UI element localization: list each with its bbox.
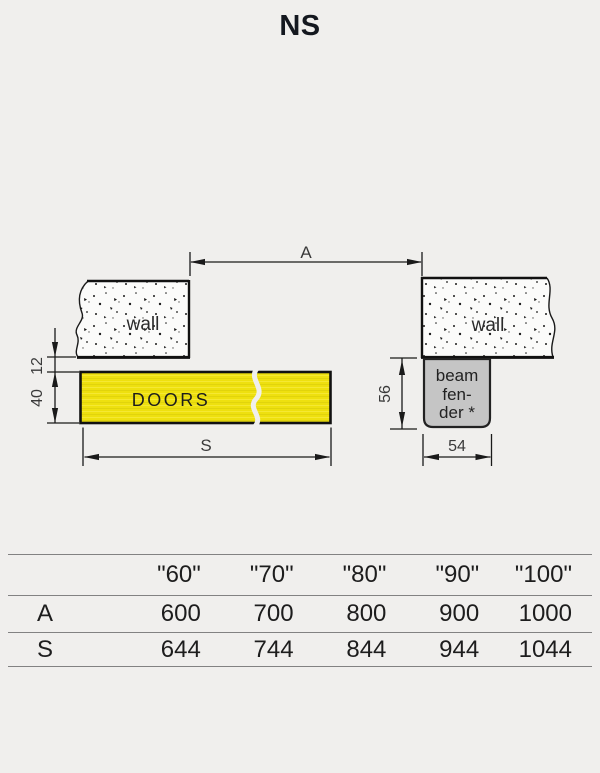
dim-54-arrow-left <box>424 454 439 460</box>
dim-a-arrow-right <box>407 259 422 265</box>
table-row-a-value-70: 700 <box>221 600 314 628</box>
dim-12-label: 12 <box>29 357 46 375</box>
table-header-80: "80" <box>314 561 407 589</box>
table-row-a: A 600 700 800 900 1000 <box>8 596 592 633</box>
table-row-s-value-100: 1044 <box>499 636 592 664</box>
wall-left-label: wall <box>126 314 160 335</box>
table-row-a-value-90: 900 <box>406 600 499 628</box>
dimension-12-40: 12 40 <box>29 328 79 423</box>
dim-56-arrow-down <box>399 412 405 427</box>
table-header-row: "60" "70" "80" "90" "100" <box>8 555 592 596</box>
dim-s-arrow-left <box>84 454 99 460</box>
dimension-s: S <box>83 428 331 467</box>
dimension-56: 56 <box>377 358 417 429</box>
dim-a-label: A <box>300 243 312 262</box>
table-row-s: S 644 744 844 944 1044 <box>8 633 592 667</box>
dim-54-arrow-right <box>476 454 491 460</box>
dim-40-label: 40 <box>29 389 46 407</box>
dim-s-arrow-right <box>315 454 330 460</box>
table-row-a-value-60: 600 <box>128 600 221 628</box>
table-header-100: "100" <box>499 561 592 589</box>
page-title: NS <box>0 10 600 43</box>
wall-right-section: wall <box>421 277 555 358</box>
doors-label: DOORS <box>132 390 211 410</box>
beam-fender-label-line2: fen- <box>442 385 471 404</box>
dim-s-label: S <box>200 436 211 455</box>
table-header-70: "70" <box>221 561 314 589</box>
dim-54-label: 54 <box>448 438 466 455</box>
dim-56-arrow-up <box>399 360 405 375</box>
dim-40-arrow-up <box>52 372 58 387</box>
table-row-a-value-80: 800 <box>314 600 407 628</box>
size-table: "60" "70" "80" "90" "100" A 600 700 800 … <box>8 554 592 667</box>
table-row-s-value-60: 644 <box>128 636 221 664</box>
page: NS <box>0 0 600 773</box>
dim-56-label: 56 <box>377 385 394 403</box>
beam-fender: beam fen- der * <box>424 359 490 427</box>
doors-bar: DOORS <box>81 369 331 427</box>
dim-a-arrow-left <box>190 259 205 265</box>
table-header-60: "60" <box>128 561 221 589</box>
dimension-a: A <box>190 243 422 276</box>
table-row-s-value-70: 744 <box>221 636 314 664</box>
table-row-a-value-100: 1000 <box>499 600 592 628</box>
table-row-s-label: S <box>8 636 128 664</box>
technical-diagram: wall wall DOORS beam fen- der * <box>0 230 600 480</box>
beam-fender-label-line3: der * <box>439 403 475 422</box>
wall-right-label: wall <box>471 315 505 336</box>
dimension-54: 54 <box>423 434 492 466</box>
wall-left-section: wall <box>76 280 190 358</box>
dim-12-arrow-down <box>52 342 58 357</box>
table-row-s-value-90: 944 <box>406 636 499 664</box>
dim-40-arrow-down <box>52 408 58 423</box>
table-header-90: "90" <box>406 561 499 589</box>
table-row-a-label: A <box>8 600 128 628</box>
beam-fender-label-line1: beam <box>436 366 479 385</box>
table-row-s-value-80: 844 <box>314 636 407 664</box>
